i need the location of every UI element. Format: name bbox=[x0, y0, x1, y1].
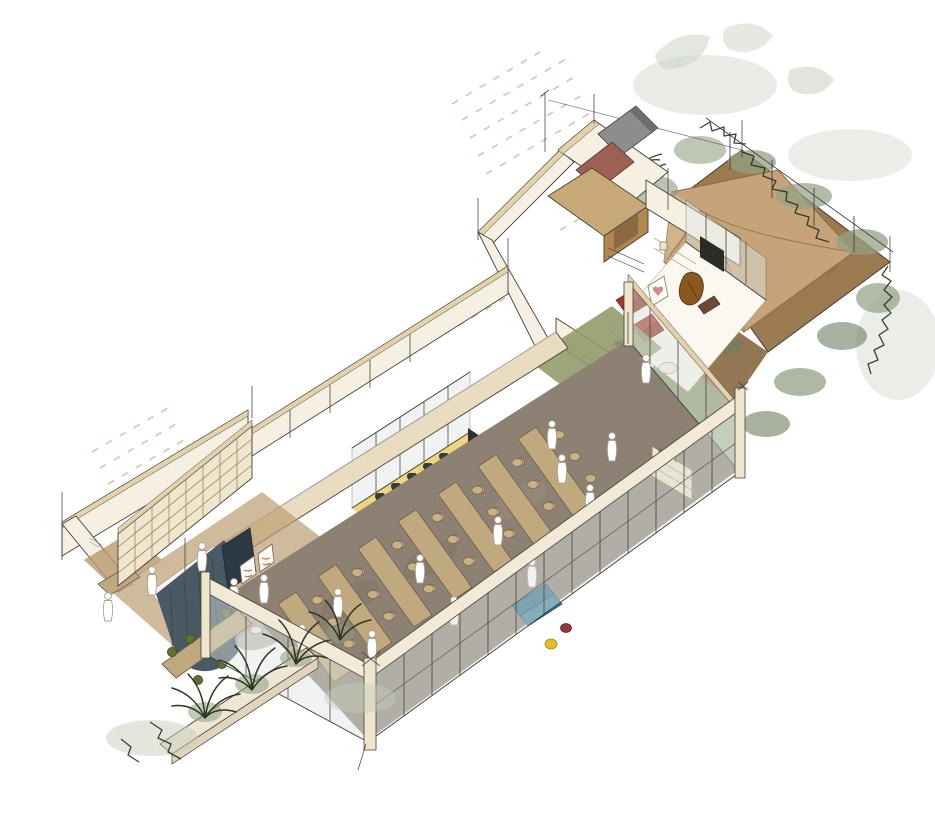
dining-chair bbox=[528, 480, 539, 488]
dining-chair bbox=[392, 541, 403, 549]
dining-chair bbox=[383, 612, 394, 620]
maroon-chair bbox=[561, 624, 572, 633]
person-figure bbox=[557, 455, 566, 483]
dining-chair bbox=[448, 535, 459, 543]
person-figure bbox=[367, 631, 376, 659]
leaf-silhouette bbox=[723, 24, 773, 53]
person-figure bbox=[197, 543, 206, 571]
dining-chair bbox=[585, 474, 596, 482]
dining-chair bbox=[512, 459, 523, 467]
yellow-chair bbox=[545, 639, 557, 649]
dining-chair bbox=[352, 569, 363, 577]
person-figure bbox=[103, 593, 112, 621]
dining-chair bbox=[488, 508, 499, 516]
dining-chair bbox=[432, 514, 443, 522]
person-figure bbox=[607, 433, 616, 461]
dining-chair bbox=[312, 596, 323, 604]
dining-chair bbox=[570, 452, 581, 460]
dining-chair bbox=[472, 486, 483, 494]
dining-chair bbox=[503, 530, 514, 538]
person-figure bbox=[259, 575, 268, 603]
sketch-canvas bbox=[0, 0, 935, 836]
dining-chair bbox=[368, 590, 379, 598]
corner-post bbox=[624, 282, 633, 346]
dining-chair bbox=[423, 585, 434, 593]
person-figure bbox=[415, 555, 424, 583]
person-figure bbox=[547, 421, 556, 449]
corner-post bbox=[201, 572, 210, 658]
person-figure bbox=[493, 517, 502, 545]
floorplan-sketch bbox=[0, 0, 935, 836]
green-chair bbox=[167, 647, 176, 656]
person-figure bbox=[333, 589, 342, 617]
dining-chair bbox=[463, 557, 474, 565]
corner-post bbox=[735, 388, 745, 478]
green-chair bbox=[185, 634, 194, 643]
dining-chair bbox=[543, 502, 554, 510]
leaf-silhouette bbox=[788, 67, 834, 95]
person-figure bbox=[641, 355, 650, 383]
person-figure bbox=[147, 567, 156, 595]
